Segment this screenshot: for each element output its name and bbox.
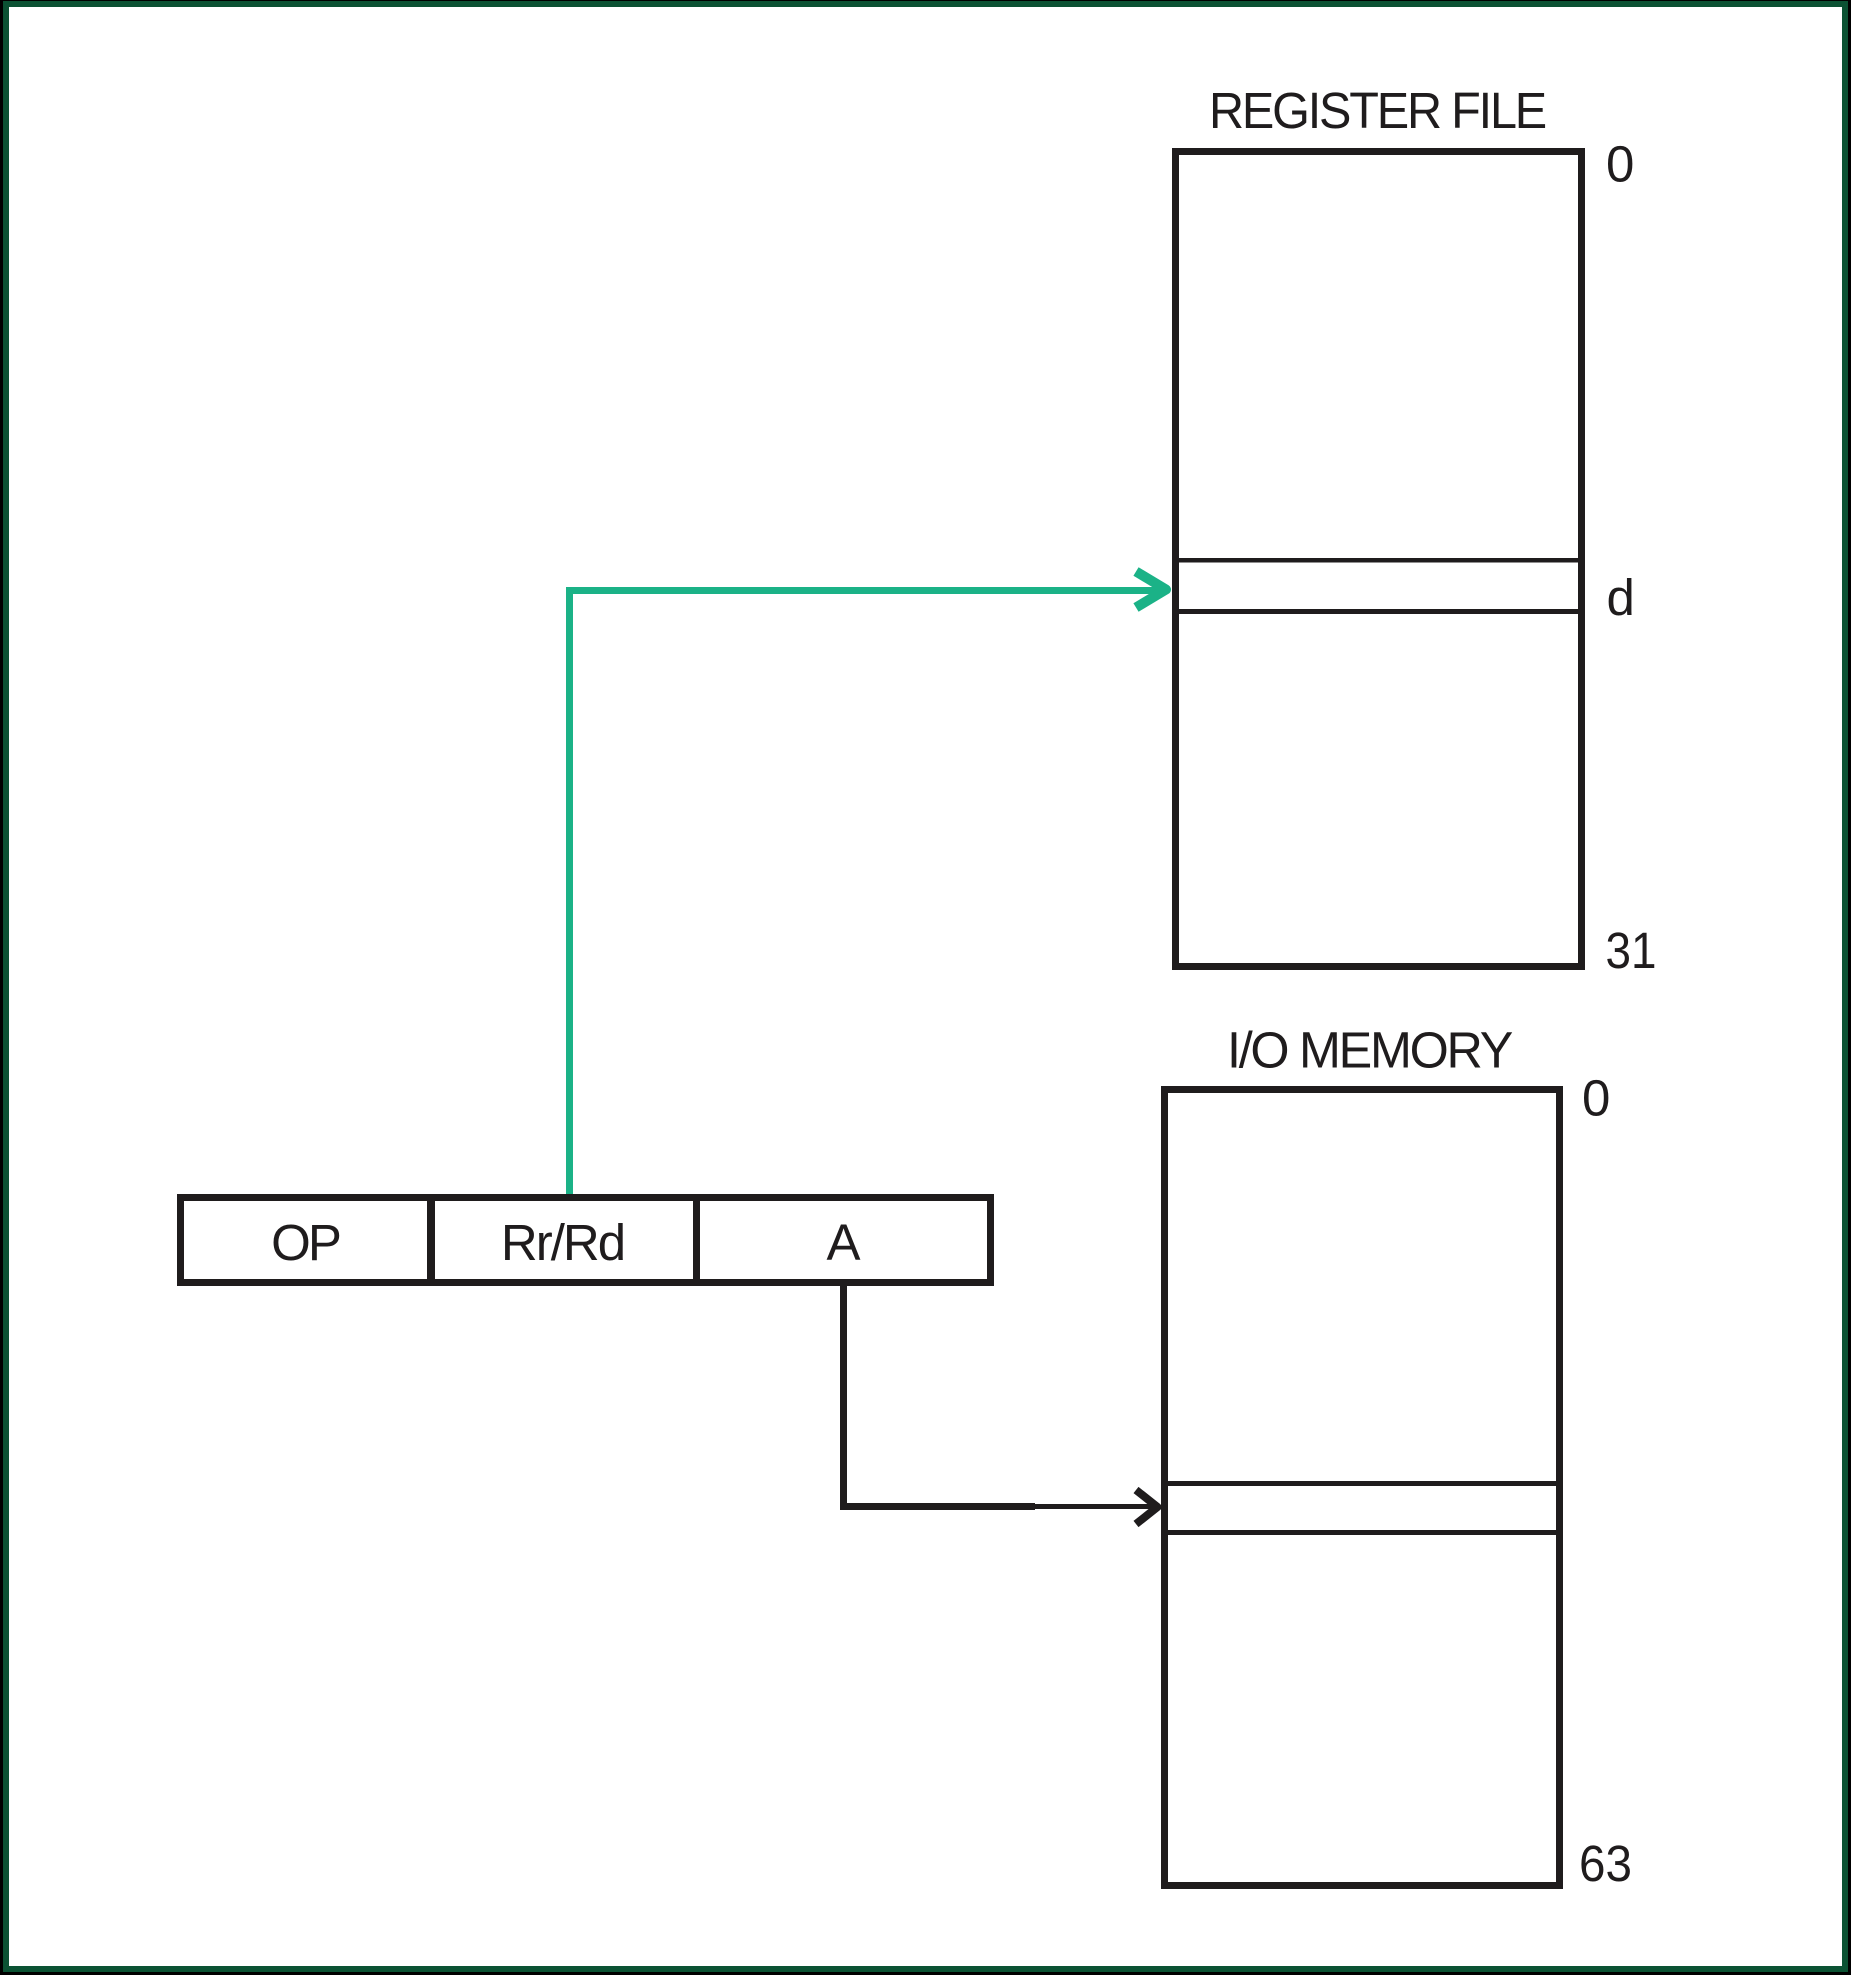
svg-text:A: A <box>826 1214 860 1271</box>
svg-text:d: d <box>1607 569 1635 626</box>
svg-text:I/O MEMORY: I/O MEMORY <box>1227 1022 1512 1079</box>
svg-text:0: 0 <box>1582 1070 1610 1127</box>
svg-text:Rr/Rd: Rr/Rd <box>501 1214 624 1271</box>
svg-text:OP: OP <box>271 1214 340 1271</box>
svg-text:63: 63 <box>1579 1835 1632 1892</box>
svg-text:31: 31 <box>1606 922 1657 979</box>
svg-text:0: 0 <box>1606 136 1634 193</box>
svg-text:REGISTER FILE: REGISTER FILE <box>1209 82 1545 139</box>
